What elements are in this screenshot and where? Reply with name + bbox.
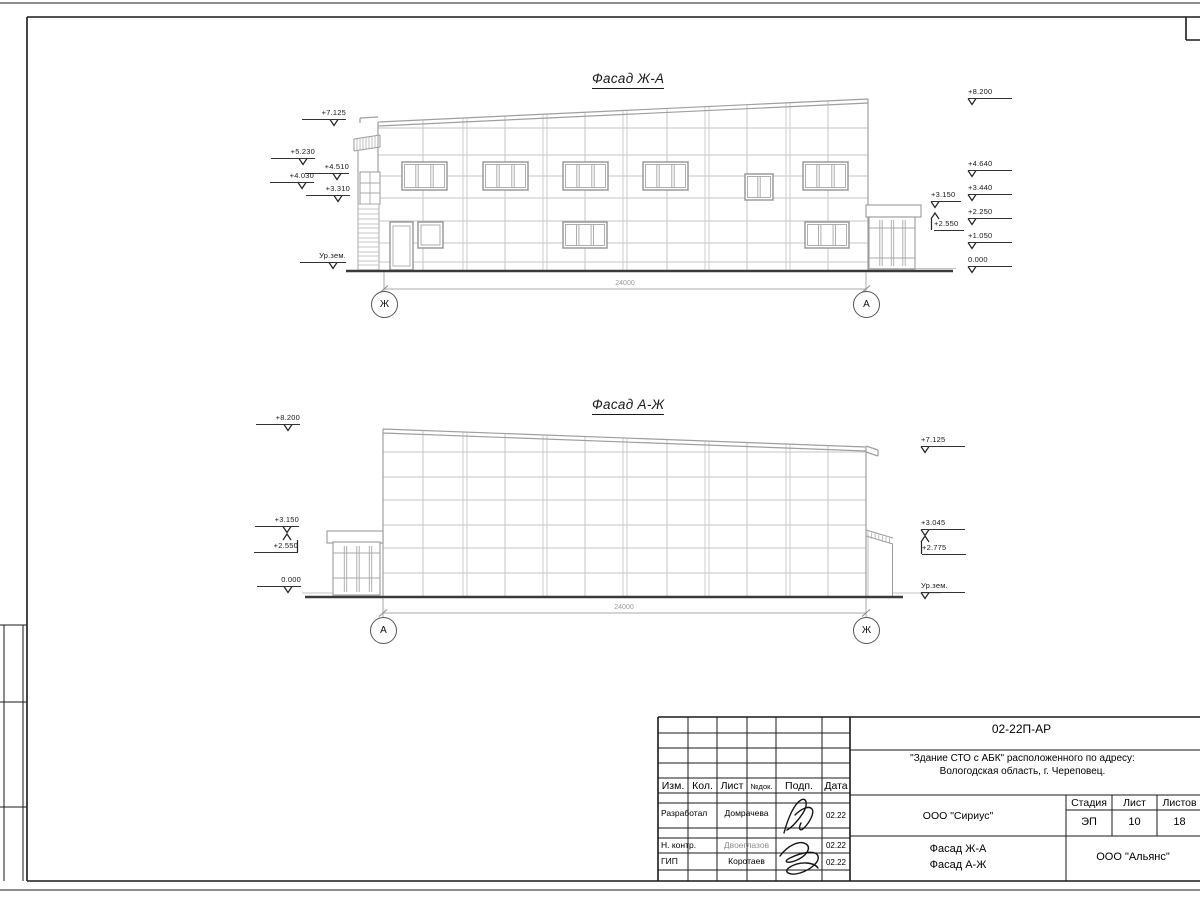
role-label: Разработал: [661, 808, 717, 818]
facade-bottom-title: Фасад А-Ж: [592, 397, 664, 415]
facade-top-title: Фасад Ж-А: [592, 71, 664, 89]
sheet-title-line1: Фасад Ж-А: [850, 843, 1066, 855]
elevation-mark: +4.640: [968, 159, 1012, 171]
col-header-kol: Кол.: [688, 780, 717, 792]
facade-top-title-wrap: Фасад Ж-А: [592, 70, 664, 89]
elevation-mark-symbols: [283, 99, 976, 599]
sheet-title-line2: Фасад А-Ж: [850, 859, 1066, 871]
project-name-line1: "Здание СТО с АБК" расположенного по адр…: [855, 753, 1190, 764]
axis-bubble: А: [853, 291, 880, 318]
facade-bottom-shed: [866, 530, 893, 597]
elevation-mark: +8.200: [968, 87, 1012, 99]
sheets-label: Листов: [1157, 797, 1200, 809]
sheets-value: 18: [1157, 816, 1200, 828]
elevation-mark: +5.230: [271, 147, 315, 159]
elevation-mark: 0.000: [968, 255, 1012, 267]
elevation-mark: +7.125: [921, 435, 965, 447]
elevation-mark: +2.775: [922, 543, 966, 555]
elevation-mark: 0.000: [257, 575, 301, 587]
person-name: Домрачева: [717, 808, 776, 818]
col-header-izm: Изм.: [658, 780, 688, 792]
date-value: 02.22: [822, 858, 850, 867]
elevation-mark: +3.310: [306, 184, 350, 196]
project-name-line2: Вологодская область, г. Череповец.: [855, 766, 1190, 777]
signature-strokes: [780, 799, 818, 874]
sheet-frame: [27, 17, 1200, 881]
elevation-mark: +3.150: [931, 190, 961, 202]
left-stamp-lines: [0, 625, 27, 881]
org-customer: ООО "Альянс": [1066, 851, 1200, 863]
facade-bottom-linework: [302, 429, 941, 617]
elevation-mark: +2.550: [934, 219, 964, 231]
elevation-mark: +8.200: [256, 413, 300, 425]
col-header-ndoc: №док.: [747, 782, 776, 791]
elevation-mark: +4.030: [270, 171, 314, 183]
elevation-mark: +2.250: [968, 207, 1012, 219]
elevation-mark: +3.440: [968, 183, 1012, 195]
date-value: 02.22: [822, 811, 850, 820]
col-header-list: Лист: [717, 780, 747, 792]
axis-bubble: А: [370, 617, 397, 644]
facade-bottom-title-wrap: Фасад А-Ж: [592, 396, 664, 415]
elevation-mark: +2.550: [254, 541, 298, 553]
org-designer: ООО "Сириус": [850, 810, 1066, 822]
col-header-podp: Подп.: [776, 780, 822, 792]
facade-bottom-vestibule: [327, 531, 383, 595]
sheet-value: 10: [1112, 816, 1157, 828]
elevation-mark: +7.125: [302, 108, 346, 120]
facade-top-vestibule: [866, 205, 921, 269]
ground-level-mark: Ур.зем.: [300, 251, 346, 263]
stage-label: Стадия: [1066, 797, 1112, 809]
axis-bubble: Ж: [371, 291, 398, 318]
sheet-label: Лист: [1112, 797, 1157, 809]
drawing-linework: [0, 0, 1200, 900]
facade-top-door: [390, 222, 413, 270]
role-label: Н. контр.: [661, 840, 717, 850]
dimension-label: 24000: [601, 280, 649, 287]
facade-top-windows: [402, 162, 849, 248]
elevation-mark: +1.050: [968, 231, 1012, 243]
person-name: Коротаев: [717, 856, 776, 866]
date-value: 02.22: [822, 841, 850, 850]
drawing-sheet: Фасад Ж-А Фасад А-Ж +7.125 +5.230 +4.510…: [0, 0, 1200, 900]
facade-top-stair: [354, 135, 380, 270]
facade-top-linework: [346, 99, 956, 293]
axis-bubble: Ж: [853, 617, 880, 644]
elevation-mark: +3.150: [255, 515, 299, 527]
elevation-mark: +3.045: [921, 518, 965, 530]
role-label: ГИП: [661, 856, 717, 866]
ground-level-mark: Ур.зем.: [921, 581, 965, 593]
dimension-label: 24000: [600, 604, 648, 611]
person-name: Двоеглазов: [717, 840, 776, 850]
doc-number: 02-22П-АР: [850, 722, 1193, 736]
stage-value: ЭП: [1066, 816, 1112, 828]
col-header-data: Дата: [822, 780, 850, 792]
